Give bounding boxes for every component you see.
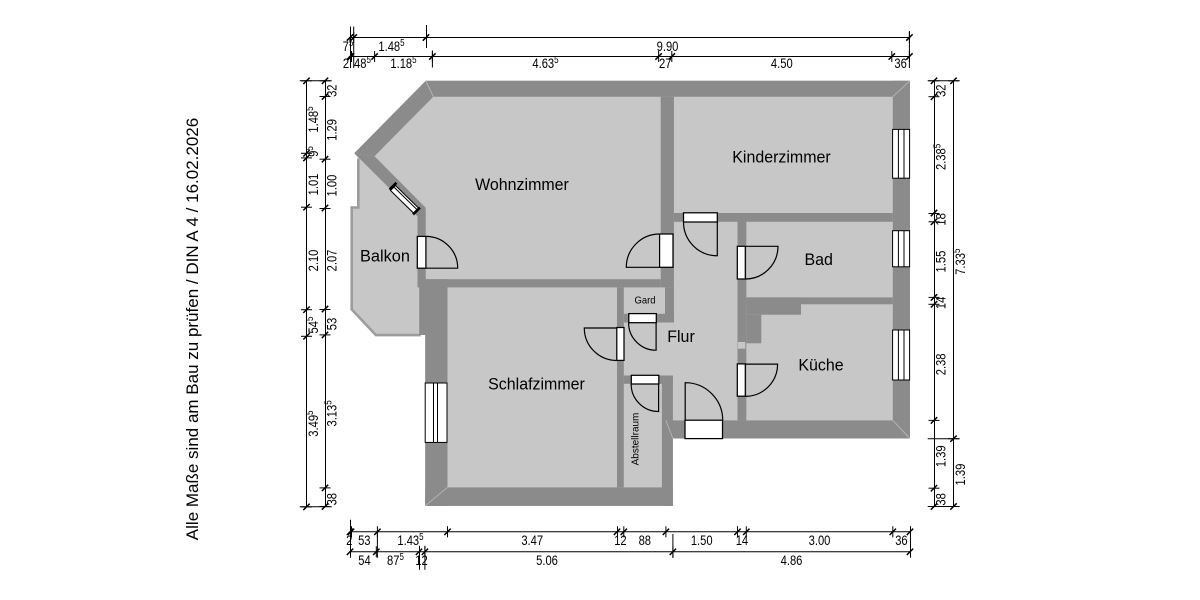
svg-text:36: 36 <box>894 56 906 71</box>
svg-text:Gard: Gard <box>635 295 656 307</box>
svg-text:53: 53 <box>358 533 370 548</box>
svg-text:1.29: 1.29 <box>324 119 339 141</box>
svg-text:5.06: 5.06 <box>536 553 558 568</box>
svg-text:27: 27 <box>659 56 671 71</box>
svg-text:Bad: Bad <box>804 250 832 269</box>
svg-text:1.50: 1.50 <box>691 533 713 548</box>
svg-text:Kinderzimmer: Kinderzimmer <box>732 148 831 167</box>
svg-text:Flur: Flur <box>667 328 695 347</box>
svg-text:Abstellraum: Abstellraum <box>631 413 642 466</box>
svg-text:1.01: 1.01 <box>306 174 321 196</box>
svg-text:2: 2 <box>346 533 352 548</box>
svg-text:Balkon: Balkon <box>360 246 410 265</box>
svg-text:Küche: Küche <box>798 356 843 375</box>
svg-text:9.90: 9.90 <box>657 39 679 54</box>
svg-text:2.07: 2.07 <box>324 250 339 272</box>
svg-text:18: 18 <box>933 213 948 225</box>
svg-text:1.55: 1.55 <box>933 251 948 273</box>
svg-text:3.00: 3.00 <box>809 533 831 548</box>
svg-text:88: 88 <box>639 533 651 548</box>
svg-text:32: 32 <box>933 84 948 96</box>
svg-text:14: 14 <box>933 297 948 309</box>
svg-text:38: 38 <box>324 493 339 505</box>
svg-text:14: 14 <box>736 533 748 548</box>
svg-text:12: 12 <box>614 533 626 548</box>
svg-text:4.50: 4.50 <box>771 56 793 71</box>
svg-text:2: 2 <box>343 56 349 71</box>
svg-text:Wohnzimmer: Wohnzimmer <box>475 176 569 195</box>
svg-text:Alle Maße sind am Bau zu prüfe: Alle Maße sind am Bau zu prüfen / DIN A … <box>183 118 202 540</box>
svg-text:2.10: 2.10 <box>306 250 321 272</box>
svg-text:2.38: 2.38 <box>933 354 948 376</box>
svg-text:3.47: 3.47 <box>521 533 543 548</box>
svg-text:1.39: 1.39 <box>933 445 948 467</box>
svg-text:1.00: 1.00 <box>324 175 339 197</box>
svg-text:1.39: 1.39 <box>953 464 968 486</box>
svg-text:32: 32 <box>324 84 339 96</box>
svg-text:Schlafzimmer: Schlafzimmer <box>488 375 585 394</box>
svg-text:53: 53 <box>324 318 339 330</box>
svg-text:36: 36 <box>895 533 907 548</box>
svg-text:4.86: 4.86 <box>781 553 803 568</box>
svg-text:54: 54 <box>358 553 370 568</box>
svg-text:12: 12 <box>415 553 427 568</box>
svg-text:38: 38 <box>933 493 948 505</box>
